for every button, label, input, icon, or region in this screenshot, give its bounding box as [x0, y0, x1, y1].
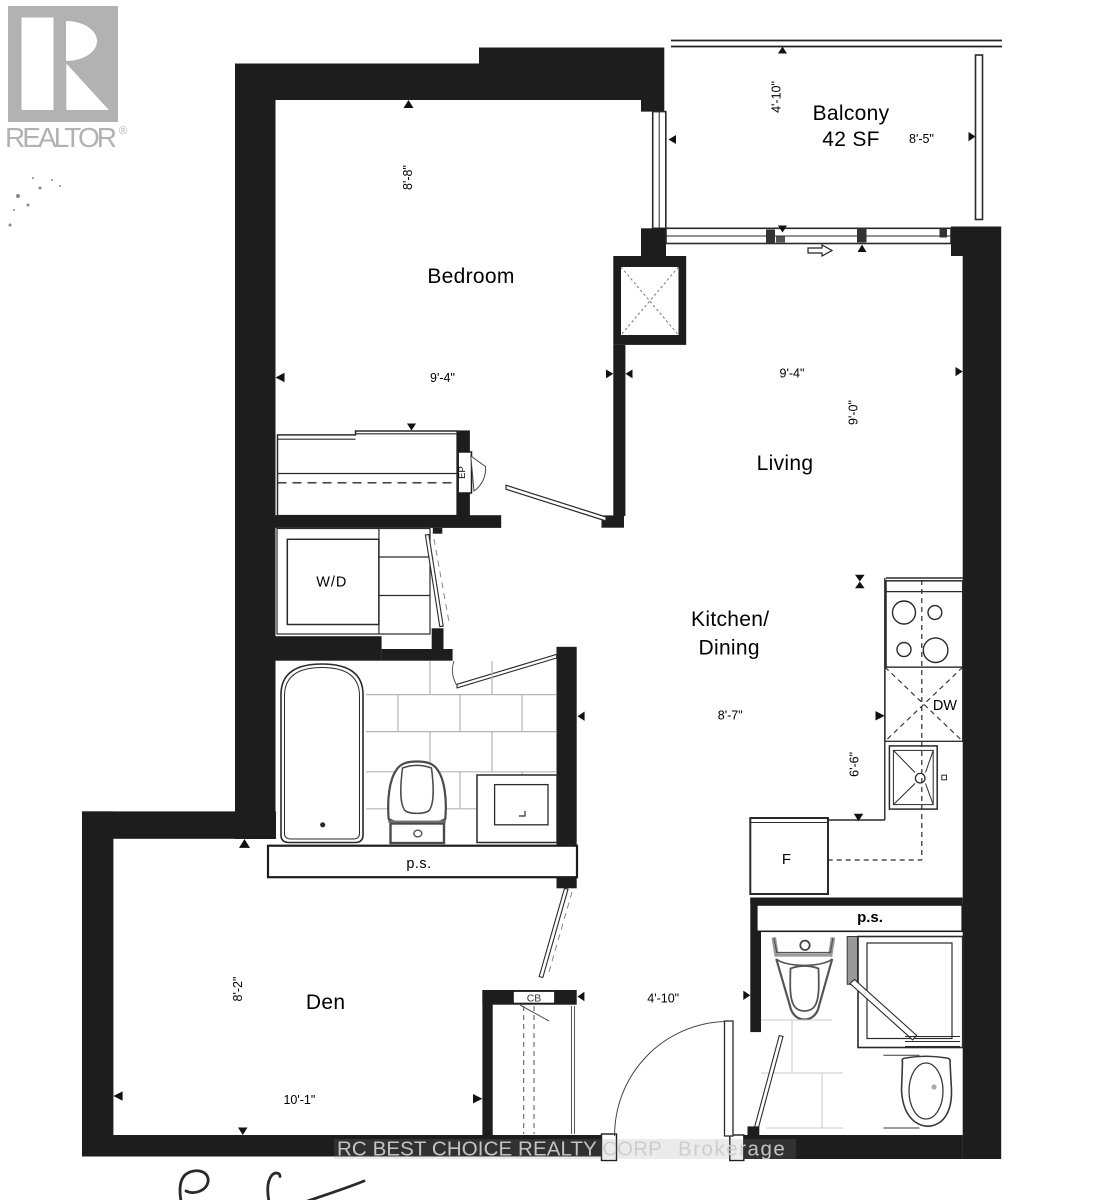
svg-text:42 SF: 42 SF — [822, 128, 880, 151]
svg-text:9'-0": 9'-0" — [847, 400, 861, 425]
svg-text:p.s.: p.s. — [857, 909, 883, 926]
svg-text:10'-1": 10'-1" — [283, 1093, 315, 1107]
svg-text:Kitchen/: Kitchen/ — [691, 608, 769, 631]
svg-text:RC BEST CHOICE REALTY CORP: RC BEST CHOICE REALTY CORP — [337, 1138, 662, 1161]
svg-text:8'-2": 8'-2" — [231, 977, 245, 1002]
svg-text:Balcony: Balcony — [813, 102, 890, 125]
svg-text:EP: EP — [457, 466, 468, 479]
svg-text:W/D: W/D — [316, 575, 347, 591]
svg-text:6'-6": 6'-6" — [848, 752, 862, 777]
svg-text:4'-10": 4'-10" — [770, 81, 784, 113]
svg-text:Bedroom: Bedroom — [427, 265, 514, 288]
svg-text:8'-5": 8'-5" — [909, 132, 934, 146]
svg-text:REALTOR: REALTOR — [5, 122, 117, 153]
svg-text:Brokerage: Brokerage — [678, 1138, 785, 1161]
svg-text:8'-7": 8'-7" — [718, 709, 743, 723]
svg-text:Dining: Dining — [699, 637, 760, 660]
svg-text:®: ® — [119, 125, 127, 137]
svg-text:4'-10": 4'-10" — [647, 992, 679, 1006]
svg-text:Living: Living — [757, 452, 814, 475]
svg-text:p.s.: p.s. — [406, 856, 431, 872]
svg-text:Den: Den — [306, 991, 345, 1014]
svg-text:8'-8": 8'-8" — [401, 165, 415, 190]
svg-text:DW: DW — [933, 698, 957, 714]
svg-text:9'-4": 9'-4" — [430, 371, 455, 385]
svg-text:9'-4": 9'-4" — [780, 367, 805, 381]
svg-text:F: F — [782, 851, 791, 868]
svg-text:CB: CB — [527, 992, 542, 1004]
